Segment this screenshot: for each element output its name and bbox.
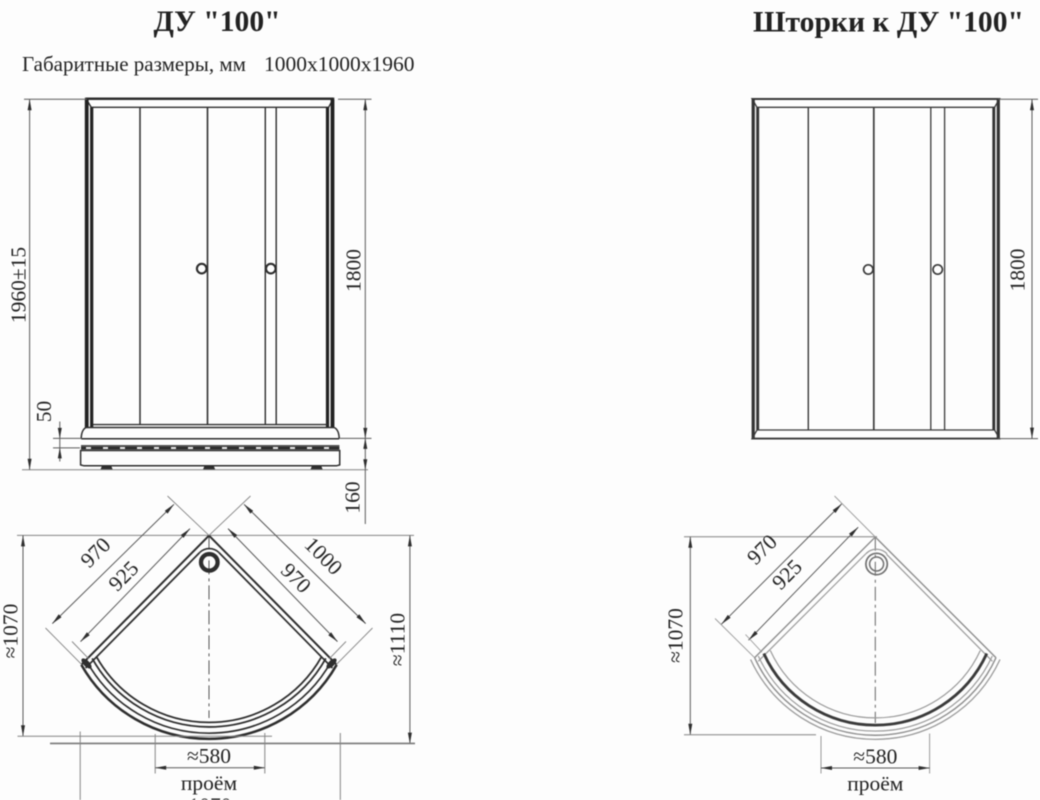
svg-text:проём: проём bbox=[847, 772, 904, 796]
svg-text:ДУ "100": ДУ "100" bbox=[153, 6, 280, 38]
svg-text:970: 970 bbox=[76, 533, 116, 573]
svg-text:970: 970 bbox=[276, 558, 316, 598]
svg-text:1000х1000х1960: 1000х1000х1960 bbox=[264, 52, 415, 76]
svg-text:1070: 1070 bbox=[189, 794, 232, 800]
svg-text:160: 160 bbox=[341, 481, 365, 513]
svg-text:50: 50 bbox=[32, 401, 56, 423]
svg-text:1800: 1800 bbox=[1006, 249, 1030, 292]
svg-text:970: 970 bbox=[742, 530, 782, 570]
svg-text:Габаритные размеры, мм: Габаритные размеры, мм bbox=[22, 52, 246, 76]
svg-text:925: 925 bbox=[104, 556, 144, 596]
svg-text:≈1110: ≈1110 bbox=[386, 613, 410, 666]
svg-text:≈1070: ≈1070 bbox=[0, 604, 23, 659]
svg-text:≈1070: ≈1070 bbox=[664, 608, 688, 663]
svg-text:проём: проём bbox=[181, 771, 238, 795]
svg-text:Шторки к ДУ "100": Шторки к ДУ "100" bbox=[753, 7, 1024, 39]
svg-text:1960±15: 1960±15 bbox=[7, 247, 31, 323]
svg-text:≈580: ≈580 bbox=[853, 744, 897, 768]
svg-text:925: 925 bbox=[767, 555, 807, 595]
svg-text:1800: 1800 bbox=[342, 249, 366, 292]
svg-text:≈580: ≈580 bbox=[187, 744, 231, 768]
